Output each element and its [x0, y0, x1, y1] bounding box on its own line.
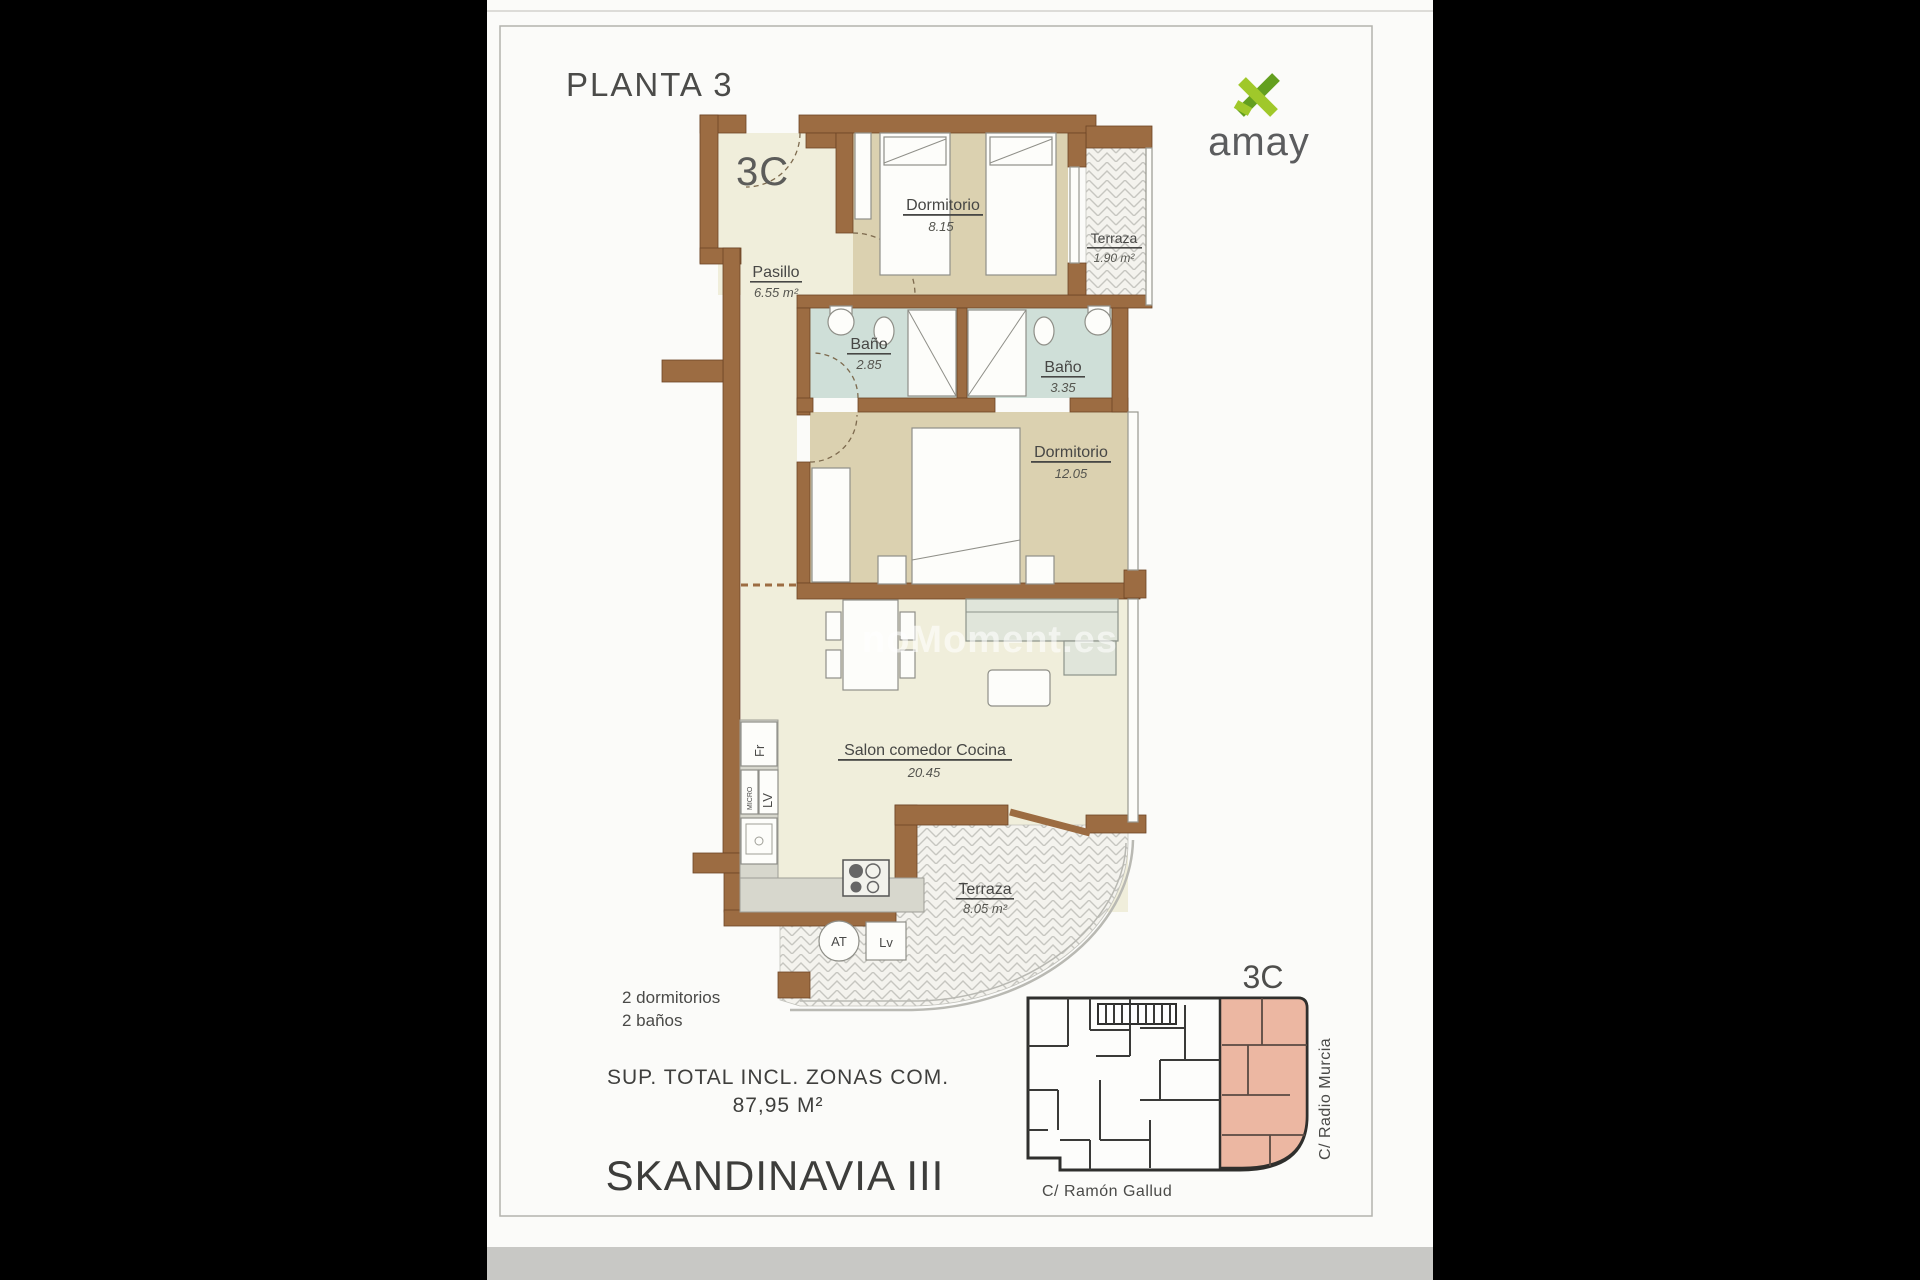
left-black-bar: [0, 0, 487, 1280]
salon-window: [1128, 599, 1138, 822]
terrace1-glass-door: [1070, 167, 1079, 263]
label-terraza1: Terraza: [1091, 230, 1138, 246]
label-pasillo: Pasillo: [752, 264, 799, 281]
street-radio-murcia: C/ Radio Murcia: [1317, 1038, 1334, 1160]
label-terraza2: Terraza: [958, 881, 1011, 898]
amay-logo-text: amay: [1208, 120, 1310, 164]
label-salon: Salon comedor Cocina: [844, 742, 1006, 759]
unit-label: 3C: [736, 150, 789, 194]
washer-label: Lv: [879, 935, 893, 950]
total-surface-value: 87,95 M²: [733, 1094, 824, 1117]
label-dormitorio2: Dormitorio: [1034, 444, 1108, 461]
total-surface-label: SUP. TOTAL INCL. ZONAS COM.: [607, 1066, 949, 1089]
fridge-label: Fr: [752, 744, 767, 757]
cooktop: [843, 860, 889, 896]
street-ramon-gallud: C/ Ramón Gallud: [1042, 1183, 1172, 1200]
screenshot-stage: PLANTA 3 amay: [0, 0, 1920, 1280]
room-pasillo: [741, 295, 797, 587]
doorway-floor: [836, 233, 853, 295]
keyplan-highlight-3c: [1220, 998, 1307, 1168]
bathrooms-count: 2 baños: [622, 1011, 683, 1030]
plan-title: PLANTA 3: [566, 66, 734, 103]
watermark: noMoment.es: [862, 619, 1118, 661]
terrace1-railing: [1146, 148, 1152, 305]
label-dormitorio1: Dormitorio: [906, 197, 980, 214]
floor-plan: 3C Dormitorio 8.15 Terraza 1.90 m² Pasil…: [662, 115, 1152, 1010]
coffee-table: [988, 670, 1050, 706]
area-bano1: 2.85: [855, 357, 882, 372]
area-dormitorio1: 8.15: [928, 219, 954, 234]
room-terraza-1: [1086, 148, 1146, 305]
area-terraza2: 8.05 m²: [963, 901, 1008, 916]
keyplan-unit-label: 3C: [1243, 959, 1284, 995]
microwave-label: MICRO: [747, 786, 754, 810]
area-dormitorio2: 12.05: [1055, 466, 1088, 481]
label-bano1: Baño: [850, 336, 887, 353]
area-salon: 20.45: [907, 765, 941, 780]
kitchen-counter-bottom: [740, 878, 924, 912]
water-heater-label: AT: [831, 934, 847, 949]
project-name: SKANDINAVIA III: [606, 1152, 945, 1199]
area-terraza1: 1.90 m²: [1094, 251, 1136, 265]
dishwasher-label: LV: [760, 793, 775, 808]
right-black-bar: [1433, 0, 1920, 1280]
floorplan-page: PLANTA 3 amay: [0, 0, 1920, 1280]
area-pasillo: 6.55 m²: [754, 285, 799, 300]
page-bottom-edge: [487, 1247, 1433, 1280]
label-bano2: Baño: [1044, 359, 1081, 376]
bedrooms-count: 2 dormitorios: [622, 988, 720, 1007]
area-bano2: 3.35: [1050, 380, 1076, 395]
fridge: [741, 722, 777, 766]
dormitorio2-window: [1128, 412, 1138, 570]
